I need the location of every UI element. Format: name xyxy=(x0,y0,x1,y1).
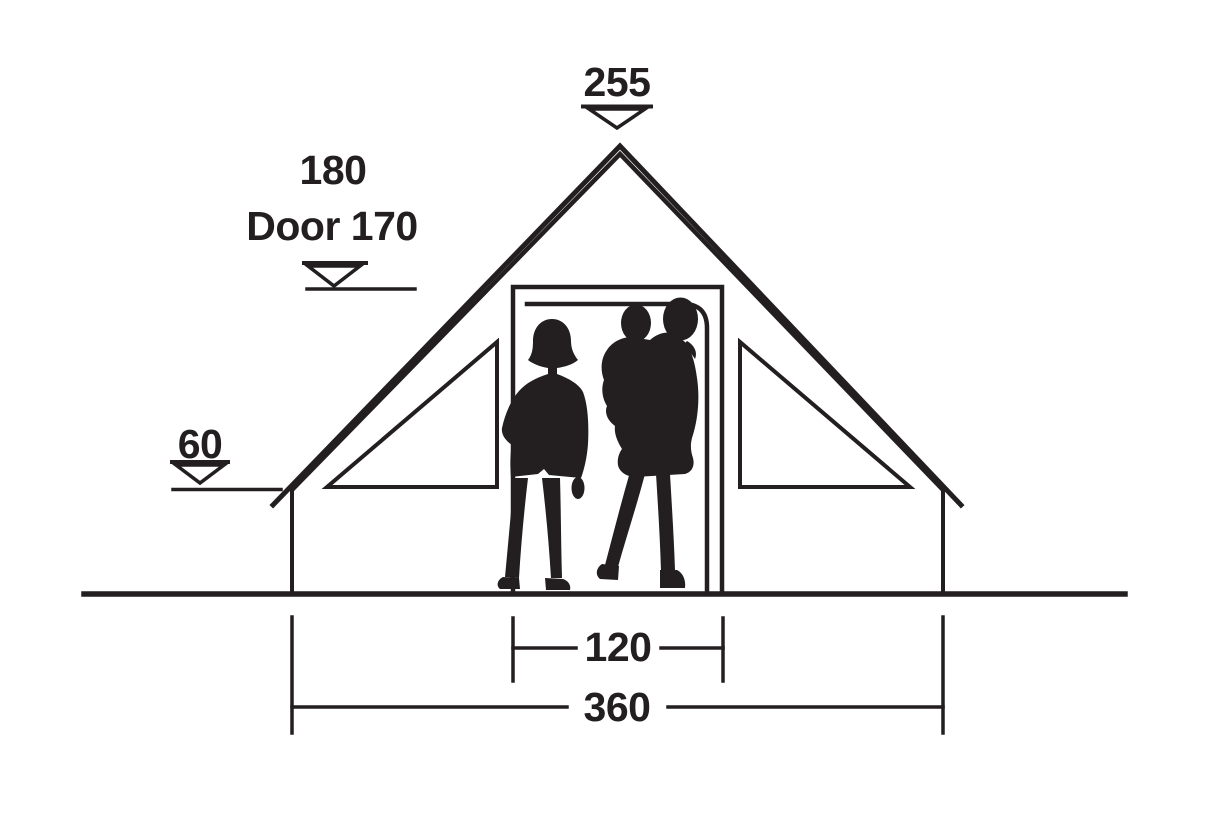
peak-height-label: 255 xyxy=(584,59,651,105)
door-height-label: Door 170 xyxy=(246,203,417,249)
adult-with-child-silhouette xyxy=(597,298,699,589)
wall-height-marker: 60 xyxy=(172,421,281,490)
total-width-label: 360 xyxy=(584,684,651,730)
down-triangle-icon xyxy=(308,266,360,286)
door-width-dimension: 120 xyxy=(513,618,723,681)
down-triangle-icon xyxy=(589,109,645,128)
tent-dimension-diagram: 255 180 Door 170 60 xyxy=(0,0,1230,826)
down-triangle-icon xyxy=(176,465,224,483)
roof-outline xyxy=(273,146,961,505)
door-height-marker: 180 Door 170 xyxy=(246,147,417,289)
peak-height-marker: 255 xyxy=(583,59,651,128)
interior-height-label: 180 xyxy=(300,147,367,193)
door-width-label: 120 xyxy=(585,624,652,670)
people-silhouette xyxy=(498,298,699,591)
